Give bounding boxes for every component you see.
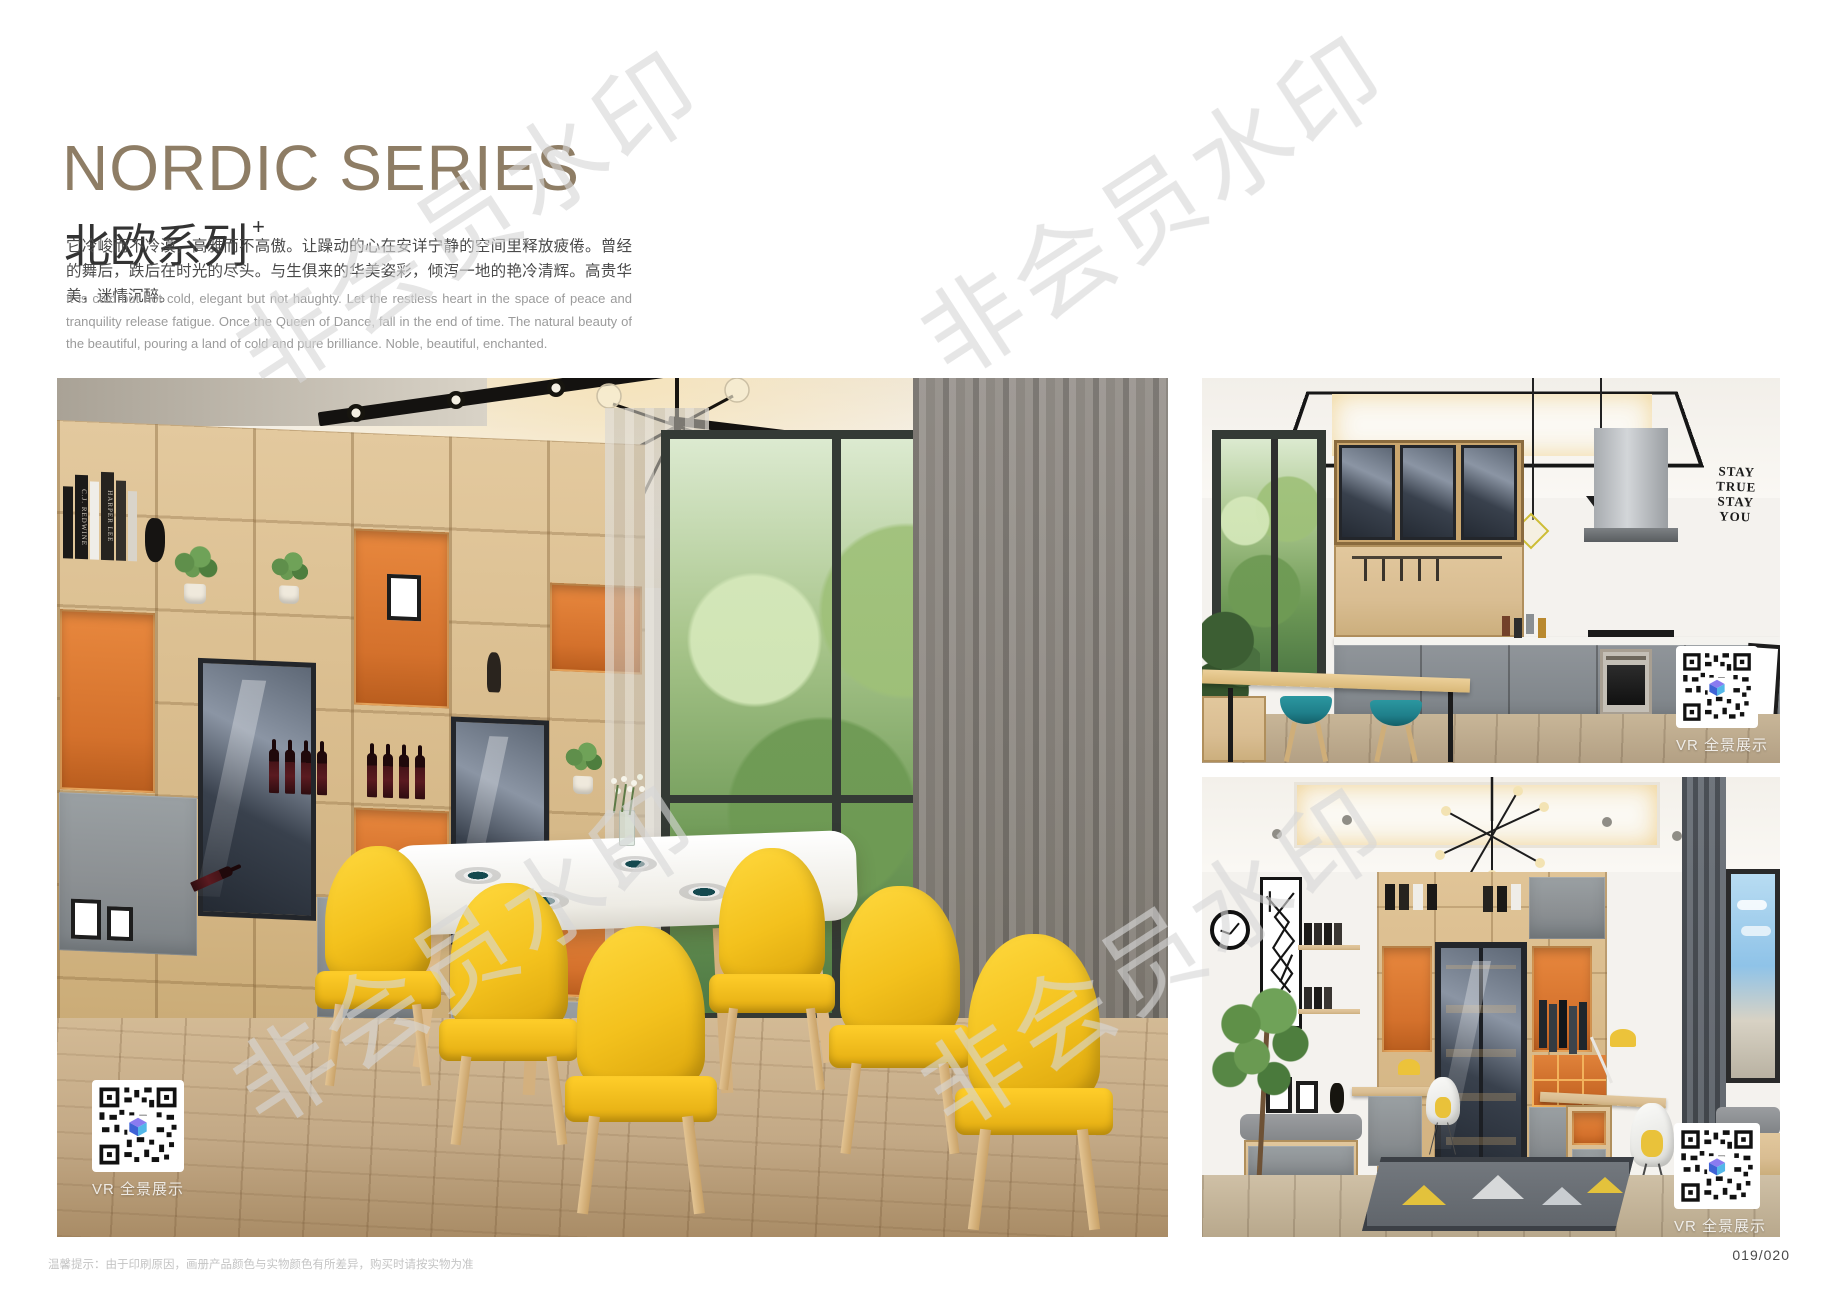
bar-side-shelf <box>1202 696 1266 762</box>
place-setting <box>613 856 657 872</box>
orange-cell-books <box>1539 1000 1547 1048</box>
photo-frame <box>387 574 421 621</box>
cloud <box>1737 900 1767 910</box>
vr-panorama-label: VR 全景展示 <box>1676 734 1768 755</box>
white-shell-chair <box>1426 1077 1460 1155</box>
photo-frame <box>71 899 101 940</box>
ceiling-recessed-light <box>1272 829 1282 839</box>
bookshelf-books: C.J. REDWINE HARPER LEE <box>61 468 173 563</box>
book-spine-titled: HARPER LEE <box>101 472 114 561</box>
rug-triangle <box>1587 1177 1623 1193</box>
wine-bottle-row <box>269 749 349 798</box>
geometric-rug <box>1362 1157 1634 1231</box>
book-spine <box>90 481 99 559</box>
footer-disclaimer: 温馨提示：由于印刷原因，画册产品颜色与实物颜色有所差异，购买时请按实物为准 <box>48 1256 474 1272</box>
glass-door <box>1461 445 1517 540</box>
black-vase <box>145 518 165 563</box>
book-spine <box>128 491 137 561</box>
bar-stool-teal <box>1370 700 1422 762</box>
wall-art-line: YOU <box>1707 508 1763 525</box>
book-spine-titled: C.J. REDWINE <box>75 475 88 560</box>
desk-lamp-yellow <box>1610 1029 1636 1047</box>
book-spine <box>116 480 126 560</box>
watermark-text: 非会员水印 <box>203 10 726 420</box>
wall-clock <box>1210 910 1250 950</box>
spotlight <box>447 391 465 409</box>
plant-foliage <box>1208 985 1318 1115</box>
drape-curtain <box>1682 777 1726 1145</box>
page-title: NORDIC SERIES <box>62 131 580 205</box>
upper-cabinet-gray <box>1529 877 1605 939</box>
cooktop <box>1588 630 1674 637</box>
shelf-cell-orange <box>60 609 155 793</box>
bar-table-leg <box>1228 688 1233 762</box>
hanging-utensil <box>1364 559 1367 581</box>
study-room-photo: VR 全景展示 <box>1202 777 1780 1237</box>
window-mullion <box>1271 439 1278 673</box>
page-number: 019/020 <box>1670 1247 1790 1263</box>
place-setting <box>455 867 501 884</box>
support-orange-niche <box>1572 1111 1606 1145</box>
range-hood <box>1594 428 1668 528</box>
pendant-wire <box>1532 378 1534 520</box>
dining-room-photo: C.J. REDWINE HARPER LEE <box>57 378 1168 1237</box>
counter-props <box>1502 616 1510 636</box>
bar-stool-teal <box>1280 696 1332 762</box>
watermark-text: 非会员水印 <box>888 0 1411 405</box>
dining-chair-yellow <box>829 886 971 1154</box>
rug-triangle <box>1402 1185 1446 1205</box>
spotlight <box>347 404 365 422</box>
vr-panorama-label: VR 全景展示 <box>1674 1215 1766 1236</box>
black-vase <box>1330 1083 1344 1113</box>
vr-qr-block[interactable]: VR 全景展示 <box>1676 646 1768 755</box>
glass-reflection <box>196 680 266 897</box>
dining-chair-yellow <box>955 934 1113 1230</box>
built-in-oven <box>1600 649 1652 715</box>
vr-qr-code <box>92 1080 184 1172</box>
dining-chair-yellow <box>709 848 835 1090</box>
vr-panorama-label: VR 全景展示 <box>92 1178 184 1199</box>
desk-lamp-yellow <box>1398 1059 1420 1075</box>
dining-chair-yellow <box>565 926 717 1214</box>
flower-vase <box>605 776 645 846</box>
rug-triangle <box>1472 1175 1524 1199</box>
photo-frame <box>107 906 133 941</box>
rug-triangle <box>1542 1187 1582 1205</box>
shelf-cell-orange <box>1382 946 1432 1052</box>
oven-glass <box>1607 665 1645 705</box>
glass-door <box>1400 445 1456 540</box>
vr-qr-code <box>1676 646 1758 728</box>
wall-art-line: TRUE <box>1708 478 1764 495</box>
dining-chair-yellow <box>315 846 441 1086</box>
bar-table-leg <box>1448 682 1453 762</box>
desk-left-pedestal <box>1368 1096 1422 1166</box>
vr-qr-block[interactable]: VR 全景展示 <box>1674 1123 1766 1236</box>
shelf-plant <box>267 549 311 605</box>
book-spine <box>63 486 73 558</box>
oven-handle <box>1606 656 1646 660</box>
shelf-books <box>1304 923 1312 945</box>
dining-chair-yellow <box>439 883 579 1145</box>
unit-top-decor <box>1385 884 1395 910</box>
vr-qr-block[interactable]: VR 全景展示 <box>92 1080 184 1199</box>
utensil-rail <box>1352 556 1502 559</box>
range-hood-base <box>1584 528 1678 542</box>
decor-figurine <box>487 652 501 693</box>
intro-paragraph-en: It is cold but not cold, elegant but not… <box>66 288 632 356</box>
floating-shelf <box>1298 945 1360 950</box>
study-window <box>1726 869 1780 1083</box>
wine-bottle-row <box>367 753 447 802</box>
shelf-plant <box>169 543 221 605</box>
countertop <box>1334 637 1780 645</box>
wall-art-stay-true: STAY TRUE STAY YOU <box>1707 463 1765 525</box>
glass-door <box>1339 445 1395 540</box>
vr-qr-code <box>1674 1123 1760 1209</box>
kitchen-photo: STAY TRUE STAY YOU VR 全景展示 <box>1202 378 1780 763</box>
upper-glass-cabinet <box>1334 440 1524 545</box>
shelf-plant <box>561 739 605 795</box>
